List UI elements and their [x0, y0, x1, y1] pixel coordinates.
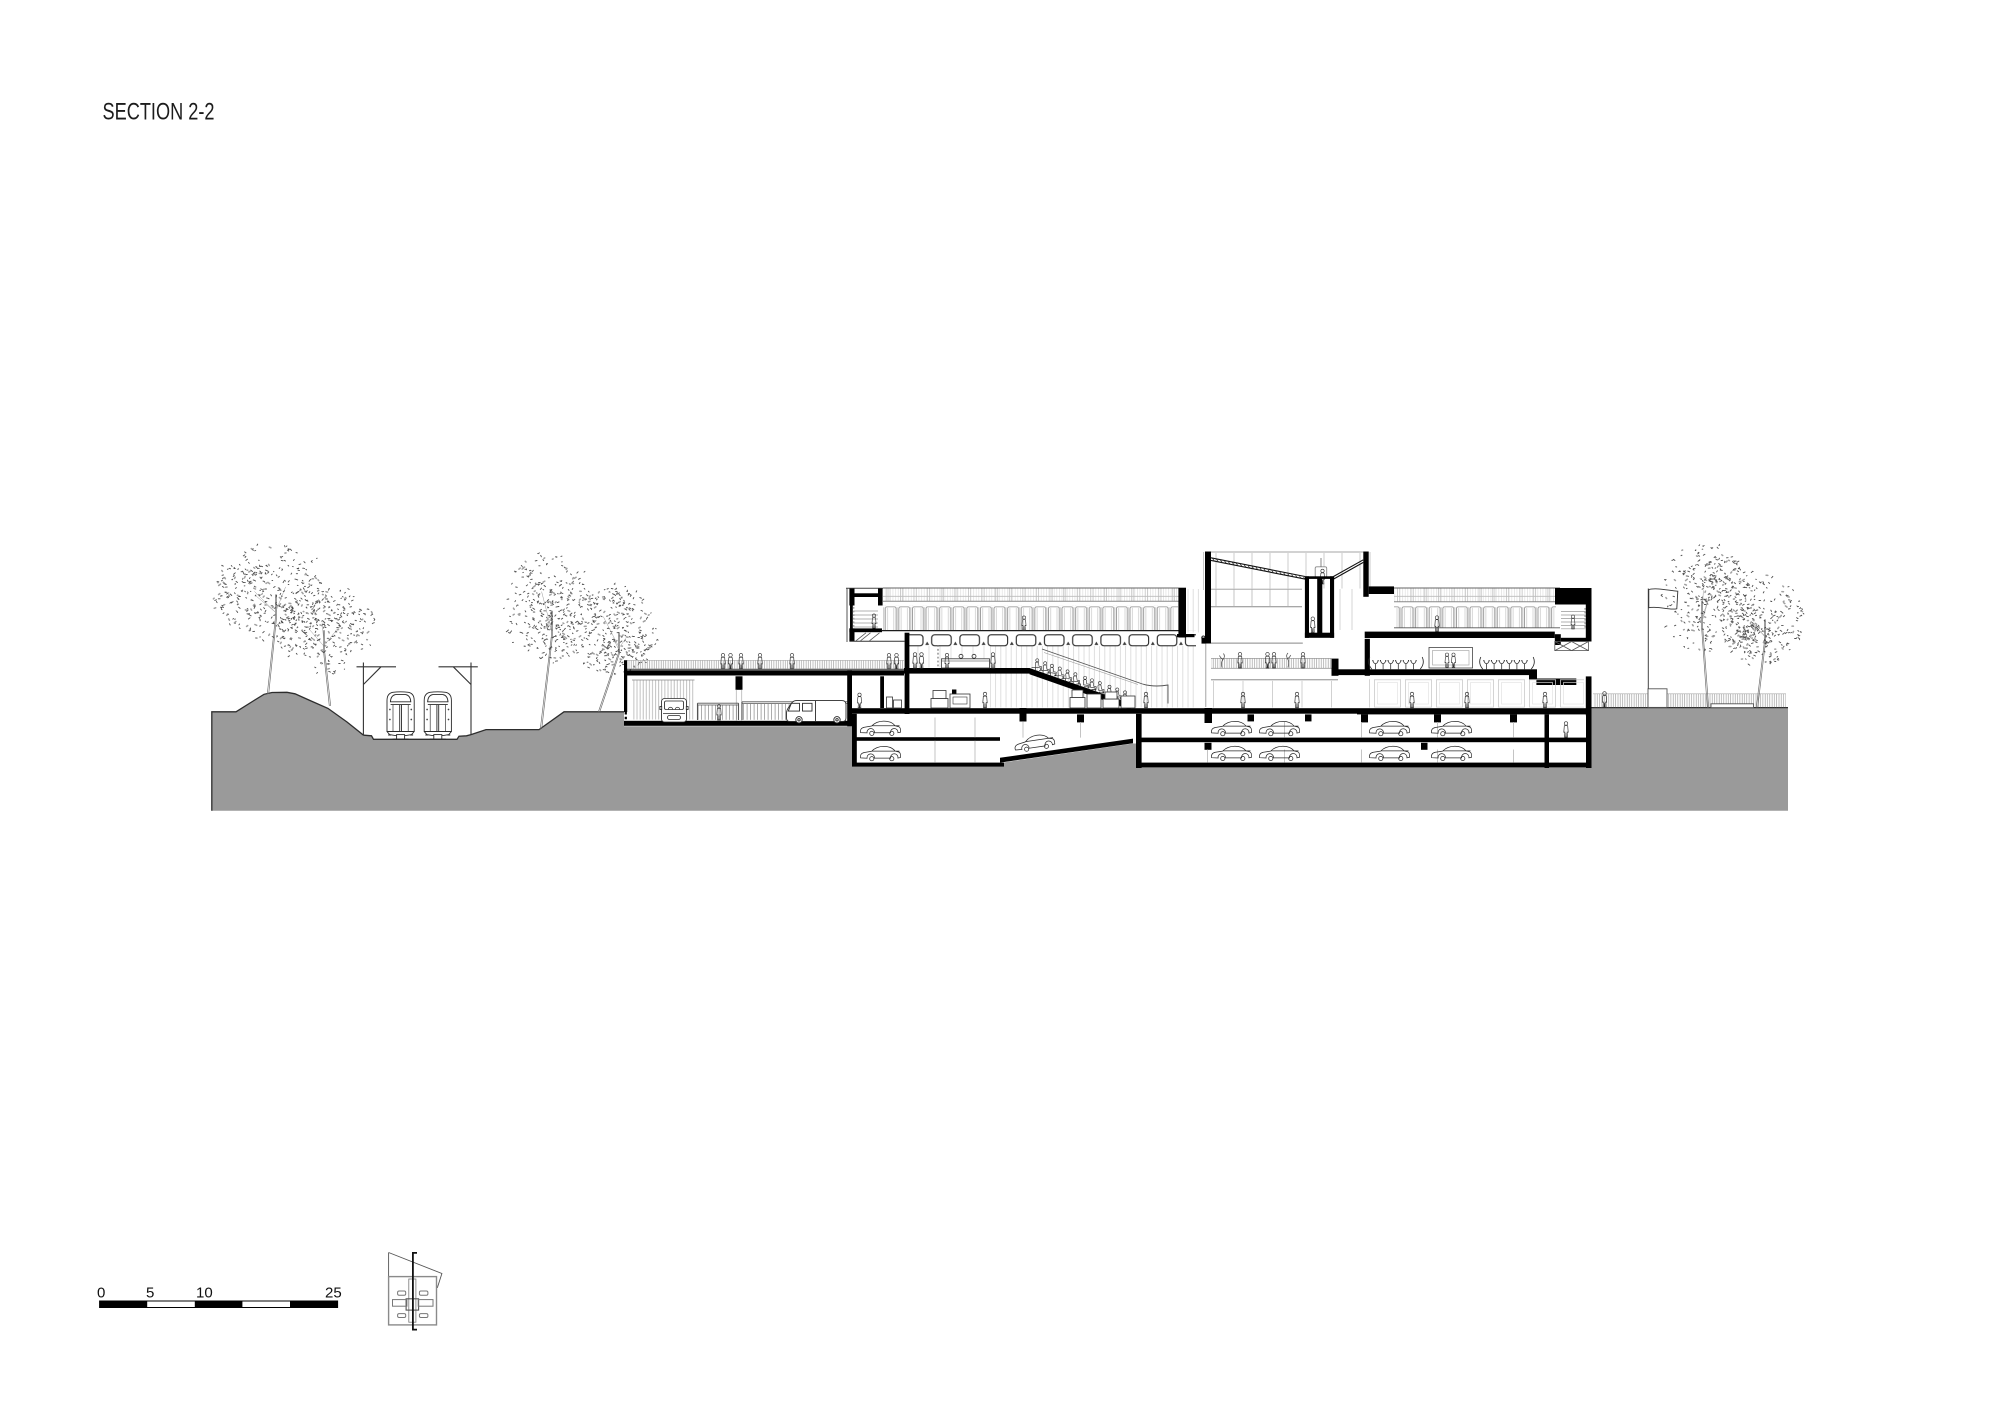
- svg-text:5: 5: [146, 1285, 154, 1302]
- svg-text:25: 25: [325, 1285, 342, 1302]
- svg-text:SECTION 2-2: SECTION 2-2: [103, 99, 215, 126]
- svg-text:10: 10: [196, 1285, 213, 1302]
- svg-text:0: 0: [97, 1285, 105, 1302]
